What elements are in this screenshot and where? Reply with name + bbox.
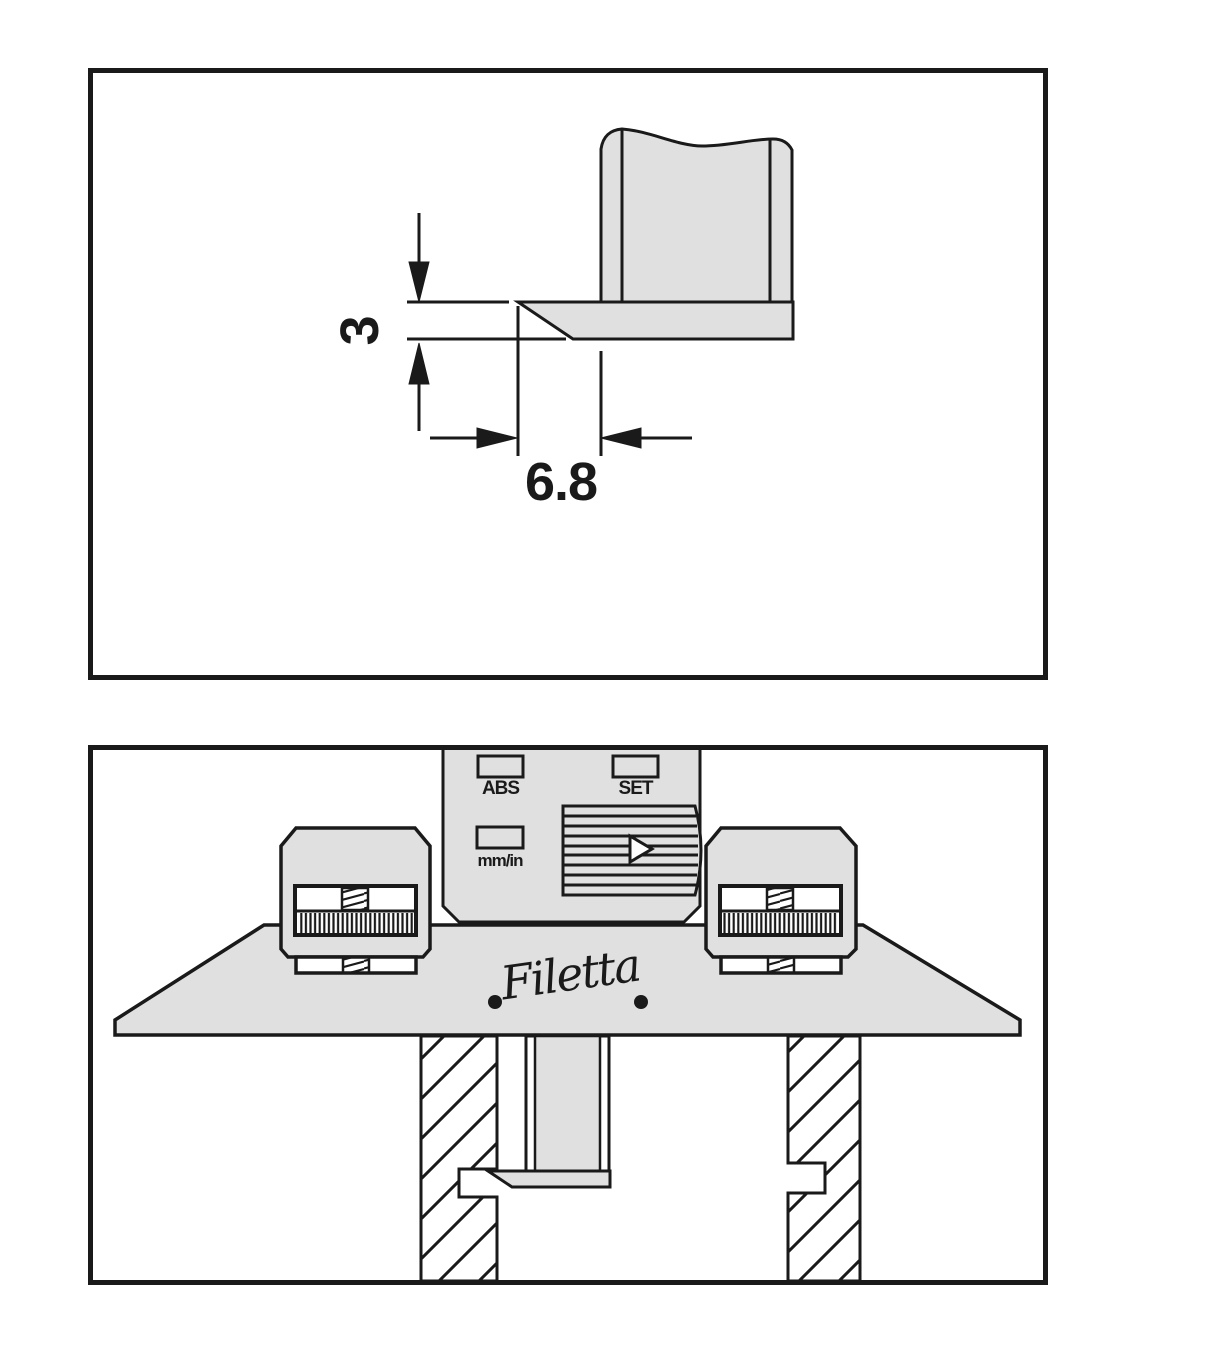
dimension-label-width: 6.8: [501, 454, 621, 510]
right-knob-knurl-band: [723, 913, 838, 933]
abs-button: [478, 756, 523, 777]
dimension-height-3: [407, 213, 566, 431]
depth-gauge-illustration: [115, 748, 1020, 1281]
measuring-rod-core: [535, 1036, 600, 1171]
left-wall-section: [421, 1036, 497, 1281]
thumbwheel: [563, 806, 701, 895]
workpiece-section: [421, 1036, 860, 1281]
mm-in-button: [477, 827, 523, 848]
right-knob-screw-thread: [767, 888, 793, 910]
manual-page: 3 6.8 ABS SET mm/in Filetta: [0, 0, 1216, 1362]
left-knob-knurl-band: [298, 913, 413, 933]
abs-button-label: ABS: [470, 779, 531, 799]
technical-drawing-canvas: [0, 0, 1216, 1362]
left-clamp-knob: [281, 828, 430, 973]
chamfer-drawing: [407, 129, 793, 456]
mm-in-button-label: mm/in: [470, 852, 530, 870]
tool-blade: [601, 129, 792, 302]
chamfered-flange: [518, 302, 793, 339]
set-button: [613, 756, 658, 777]
left-knob-screw-thread: [342, 888, 368, 910]
plate-dot-right: [634, 995, 648, 1009]
top-panel-frame: [91, 71, 1046, 678]
set-button-label: SET: [605, 779, 666, 799]
dimension-label-height: 3: [332, 303, 388, 359]
measuring-foot: [488, 1171, 610, 1187]
right-wall-section: [788, 1036, 860, 1281]
right-clamp-knob: [706, 828, 856, 973]
